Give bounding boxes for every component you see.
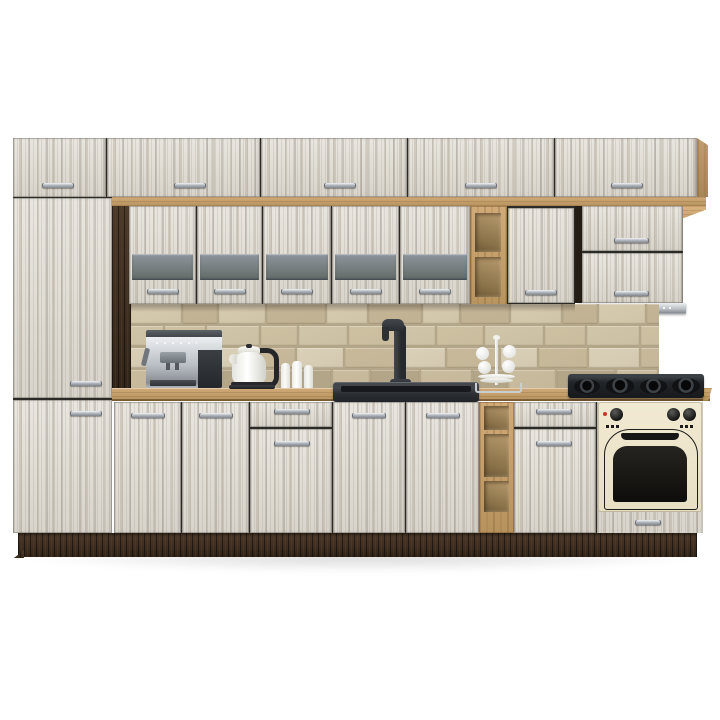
cabinet-door [508, 208, 574, 303]
door-handle-icon [199, 413, 233, 418]
door-handle-icon [614, 291, 649, 296]
sink-base-door [333, 402, 405, 533]
base-cabinet-door [250, 429, 332, 533]
door-handle-icon [70, 411, 102, 416]
top-cabinet-row [13, 138, 697, 197]
kitchen-set-photo [0, 0, 720, 720]
door-handle-icon [324, 183, 356, 188]
backsplash-tile [647, 304, 659, 324]
door-handle-icon [419, 289, 451, 294]
door-handle-icon [614, 238, 649, 243]
built-in-oven [598, 402, 702, 512]
drawer-handle-icon [274, 409, 310, 414]
burner-grate [640, 379, 667, 394]
door-handle-icon [147, 289, 179, 294]
oven-indicator-light [603, 412, 607, 416]
glass-cabinet-door [400, 206, 470, 304]
oven-knob [683, 408, 696, 421]
cabinet-door [13, 198, 112, 398]
base-cabinet-row [114, 402, 703, 533]
glass-insert [132, 254, 193, 280]
cabinet-door [13, 138, 106, 197]
candles [281, 361, 315, 388]
burner-grate [606, 378, 634, 394]
mug-stand [474, 337, 519, 392]
drawer-front [514, 402, 596, 427]
wall-glass-cabinet-row [129, 206, 470, 304]
mixer-tap [380, 319, 422, 389]
floor-shadow [8, 555, 712, 573]
glass-cabinet-door [332, 206, 399, 304]
plinth [18, 533, 697, 557]
flip-up-door [582, 253, 683, 303]
backsplash-tile [589, 348, 639, 368]
shelf-compartment [475, 257, 501, 297]
top-row-side-panel [697, 138, 708, 197]
door-handle-icon [525, 290, 557, 295]
backsplash-tile [261, 326, 297, 346]
door-handle-icon [274, 441, 310, 446]
flip-up-door [582, 206, 683, 251]
cabinet-gap-shadow [575, 206, 582, 303]
cabinet-door [107, 138, 260, 197]
base-cabinet-door [514, 429, 596, 533]
door-handle-icon [426, 413, 460, 418]
under-cabinet-shadow [131, 304, 575, 312]
backsplash-tile [599, 304, 645, 324]
door-handle-icon [70, 381, 102, 386]
door-handle-icon [465, 183, 497, 188]
door-handle-icon [536, 441, 572, 446]
stand-rack [475, 383, 522, 393]
glass-cabinet-door [197, 206, 262, 304]
oven-window [613, 446, 687, 502]
base-cabinet-door [114, 402, 181, 533]
door-handle-icon [214, 289, 246, 294]
glass-insert [403, 254, 467, 280]
drawer-handle-icon [635, 520, 661, 525]
door-handle-icon [281, 289, 313, 294]
backsplash-tile [539, 348, 587, 368]
glass-cabinet-door [263, 206, 331, 304]
oven-door-handle [621, 433, 679, 440]
flip-up-cabinet [582, 206, 683, 303]
cabinet-door [261, 138, 407, 197]
electric-kettle [228, 344, 278, 389]
glass-insert [200, 254, 259, 280]
cabinet-door [555, 138, 697, 197]
oven-vent [680, 425, 694, 428]
burner-grate [672, 378, 700, 394]
kitchen-sink [333, 382, 479, 402]
oven-knob [610, 408, 623, 421]
drawer-front [250, 402, 332, 427]
backsplash-tile [299, 326, 347, 346]
gas-hob [568, 374, 704, 398]
backsplash-tile [587, 326, 639, 346]
coffee-machine [146, 330, 222, 388]
cornice [107, 197, 706, 206]
backsplash-tile [641, 348, 659, 368]
coffee-machine-buttons [153, 341, 197, 345]
shelf-compartment [484, 406, 509, 430]
burner-grate [574, 379, 600, 394]
glass-insert [266, 254, 328, 280]
shelf-compartment [484, 481, 509, 512]
door-handle-icon [350, 289, 382, 294]
glass-insert [335, 254, 396, 280]
oven-cabinet [597, 402, 703, 533]
door-handle-icon [131, 413, 165, 418]
shelf-compartment [475, 213, 501, 252]
base-cabinet-door [182, 402, 249, 533]
door-handle-icon [42, 183, 74, 188]
backsplash-tile [641, 326, 659, 346]
lower-open-shelf [479, 402, 514, 533]
upper-open-shelf [470, 206, 507, 313]
countertop-end [703, 388, 712, 401]
oven-drawer-front [597, 512, 703, 533]
oven-knob [667, 408, 680, 421]
drawer-handle-icon [536, 409, 572, 414]
cabinet-door [408, 138, 554, 197]
oven-vent [606, 425, 620, 428]
glass-cabinet-door [129, 206, 196, 304]
backsplash-tile [545, 326, 585, 346]
door-handle-icon [174, 183, 206, 188]
shelf-compartment [484, 434, 509, 477]
wall-cabinet [507, 206, 575, 304]
cabinet-door [13, 400, 112, 533]
door-handle-icon [611, 183, 643, 188]
door-handle-icon [352, 413, 386, 418]
sink-base-door [406, 402, 479, 533]
tall-cabinet [13, 197, 112, 533]
